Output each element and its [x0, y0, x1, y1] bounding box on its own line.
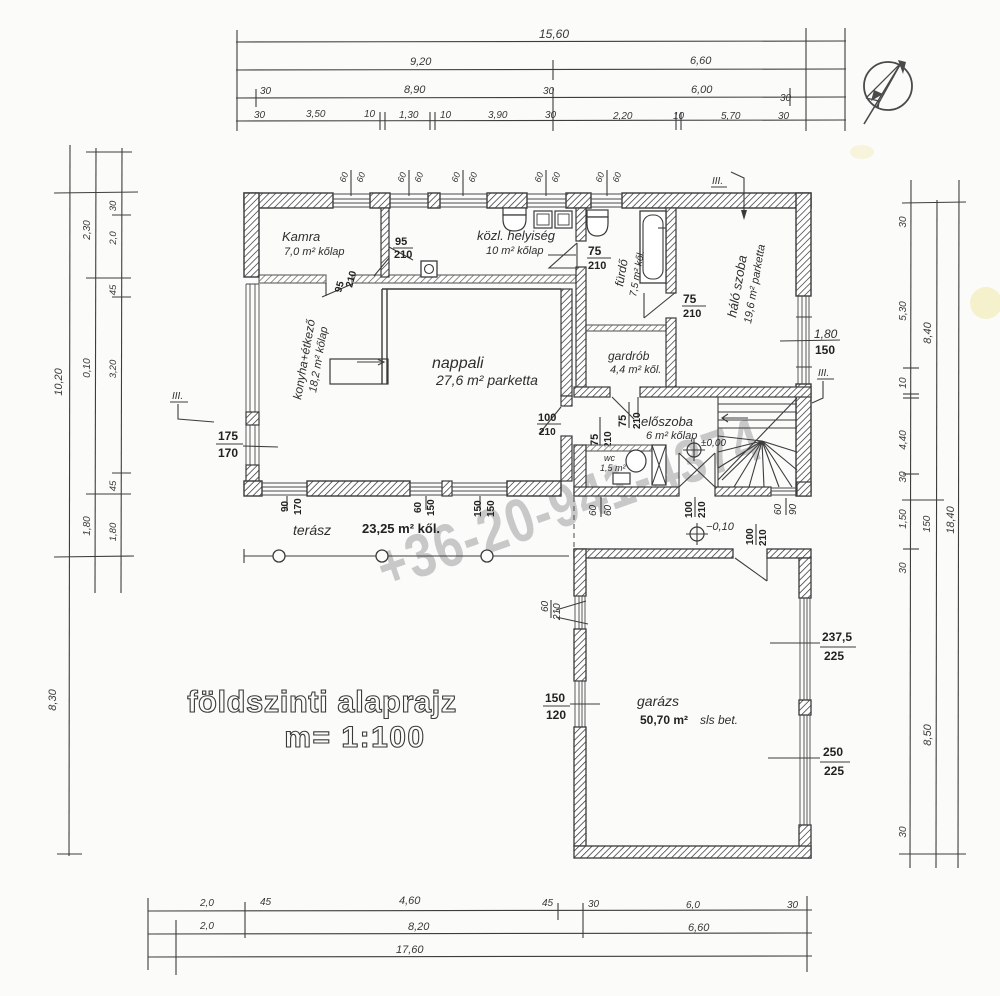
svg-text:III.: III.: [172, 391, 183, 402]
svg-text:10: 10: [898, 377, 909, 389]
svg-text:10: 10: [673, 111, 685, 122]
svg-text:garázs: garázs: [637, 693, 679, 709]
svg-text:250: 250: [823, 745, 843, 759]
svg-text:60: 60: [603, 504, 614, 516]
svg-text:18,40: 18,40: [945, 505, 957, 533]
svg-text:150: 150: [815, 343, 835, 357]
svg-text:1,5 m²: 1,5 m²: [600, 463, 627, 473]
svg-text:30: 30: [588, 899, 600, 910]
svg-text:−0,10: −0,10: [706, 521, 735, 533]
svg-text:30: 30: [108, 200, 119, 211]
svg-text:8,30: 8,30: [47, 688, 59, 710]
svg-text:90: 90: [788, 503, 799, 515]
svg-text:1,80: 1,80: [82, 516, 93, 536]
svg-text:17,60: 17,60: [396, 944, 424, 956]
svg-text:5,30: 5,30: [898, 301, 909, 321]
svg-text:150: 150: [473, 500, 484, 517]
svg-text:15,60: 15,60: [539, 27, 569, 41]
svg-text:30: 30: [898, 826, 909, 838]
svg-text:8,50: 8,50: [922, 723, 934, 745]
svg-text:1,50: 1,50: [898, 509, 909, 529]
svg-text:210: 210: [758, 529, 769, 546]
svg-text:100: 100: [745, 528, 756, 545]
svg-text:75: 75: [588, 244, 602, 258]
svg-text:225: 225: [824, 764, 844, 778]
svg-text:Kamra: Kamra: [282, 229, 320, 244]
svg-text:sls bet.: sls bet.: [700, 713, 738, 727]
svg-text:III.: III.: [818, 368, 829, 379]
svg-text:120: 120: [546, 708, 566, 722]
svg-text:6 m² kőlap: 6 m² kőlap: [646, 430, 697, 442]
svg-text:10: 10: [364, 109, 376, 120]
svg-text:6,60: 6,60: [688, 922, 710, 934]
svg-text:50,70 m²: 50,70 m²: [640, 713, 688, 727]
svg-text:75: 75: [683, 292, 697, 306]
svg-text:4,4 m² kől.: 4,4 m² kől.: [610, 364, 661, 376]
svg-text:60: 60: [773, 503, 784, 515]
svg-text:60: 60: [540, 600, 551, 612]
svg-text:közl. helyiség: közl. helyiség: [477, 228, 556, 243]
svg-text:1,80: 1,80: [814, 327, 838, 341]
svg-text:6,00: 6,00: [691, 84, 713, 96]
svg-text:30: 30: [780, 93, 792, 104]
svg-text:8,90: 8,90: [404, 84, 426, 96]
svg-text:45: 45: [108, 284, 119, 295]
svg-text:23,25 m² kől.: 23,25 m² kől.: [362, 521, 440, 536]
svg-text:1,30: 1,30: [399, 110, 419, 121]
svg-text:3,20: 3,20: [108, 359, 119, 378]
svg-text:27,6 m² parketta: 27,6 m² parketta: [435, 372, 538, 388]
svg-text:210: 210: [539, 427, 556, 438]
svg-text:wc: wc: [604, 453, 615, 463]
svg-text:175: 175: [218, 429, 238, 443]
svg-text:m= 1:100: m= 1:100: [284, 721, 425, 754]
svg-text:60: 60: [588, 504, 599, 516]
svg-text:95: 95: [395, 236, 407, 248]
svg-text:45: 45: [260, 897, 272, 908]
svg-text:75: 75: [589, 434, 601, 446]
svg-text:210: 210: [588, 260, 606, 272]
svg-text:8,40: 8,40: [922, 321, 934, 343]
svg-text:7,0 m² kőlap: 7,0 m² kőlap: [284, 246, 345, 258]
svg-text:4,60: 4,60: [399, 895, 421, 907]
svg-text:210: 210: [683, 308, 701, 320]
svg-text:6,0: 6,0: [686, 900, 700, 911]
svg-text:170: 170: [293, 498, 304, 515]
svg-text:30: 30: [898, 216, 909, 228]
svg-text:9,20: 9,20: [410, 56, 432, 68]
svg-text:225: 225: [824, 649, 844, 663]
svg-text:előszoba: előszoba: [641, 414, 693, 429]
svg-text:1,80: 1,80: [108, 522, 119, 541]
svg-text:2,0: 2,0: [199, 898, 214, 909]
svg-text:45: 45: [542, 898, 554, 909]
svg-text:gardrób: gardrób: [608, 349, 650, 363]
svg-text:150: 150: [922, 515, 933, 532]
svg-text:10,20: 10,20: [53, 367, 65, 395]
svg-text:30: 30: [898, 471, 909, 483]
svg-text:nappali: nappali: [432, 355, 484, 372]
svg-text:terász: terász: [293, 522, 331, 538]
svg-text:10 m² kőlap: 10 m² kőlap: [486, 245, 543, 257]
svg-text:90: 90: [280, 500, 291, 512]
svg-text:30: 30: [254, 110, 266, 121]
svg-text:30: 30: [260, 86, 272, 97]
svg-text:3,50: 3,50: [306, 109, 326, 120]
svg-text:30: 30: [545, 110, 557, 121]
svg-text:75: 75: [617, 415, 629, 427]
svg-text:150: 150: [545, 691, 565, 705]
svg-text:földszinti alaprajz: földszinti alaprajz: [187, 684, 457, 719]
svg-text:150: 150: [426, 499, 437, 516]
svg-text:170: 170: [218, 446, 238, 460]
svg-text:2,0: 2,0: [108, 231, 119, 246]
svg-text:210: 210: [394, 249, 412, 261]
svg-text:237,5: 237,5: [822, 630, 852, 644]
svg-text:2,0: 2,0: [199, 921, 214, 932]
svg-text:3,90: 3,90: [488, 110, 508, 121]
svg-text:30: 30: [787, 900, 799, 911]
svg-text:0,10: 0,10: [82, 358, 93, 378]
svg-text:2,20: 2,20: [612, 111, 633, 122]
svg-text:100: 100: [684, 501, 695, 518]
svg-text:30: 30: [898, 562, 909, 574]
svg-text:5,70: 5,70: [721, 111, 741, 122]
svg-text:±0,00: ±0,00: [701, 438, 726, 449]
svg-text:45: 45: [108, 480, 119, 491]
svg-text:30: 30: [778, 111, 790, 122]
svg-text:2,30: 2,30: [82, 220, 93, 241]
svg-text:8,20: 8,20: [408, 921, 430, 933]
svg-text:III.: III.: [712, 176, 723, 187]
svg-text:10: 10: [440, 110, 452, 121]
svg-text:4,40: 4,40: [898, 430, 909, 450]
svg-text:6,60: 6,60: [690, 55, 712, 67]
svg-text:100: 100: [538, 412, 556, 424]
svg-text:60: 60: [413, 501, 424, 513]
svg-text:210: 210: [697, 501, 708, 518]
svg-text:150: 150: [486, 500, 497, 517]
